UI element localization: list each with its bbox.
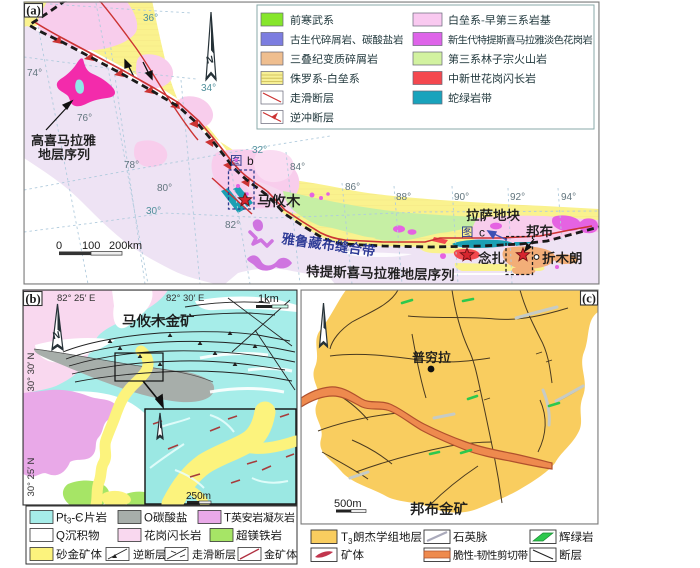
svg-text:82° 30′ E: 82° 30′ E xyxy=(166,293,204,304)
svg-text:32°: 32° xyxy=(252,145,267,156)
svg-text:c: c xyxy=(479,226,485,240)
svg-text:82° 25′ E: 82° 25′ E xyxy=(57,293,95,304)
svg-text:O: O xyxy=(144,513,153,525)
svg-text:(c): (c) xyxy=(582,292,596,306)
svg-text:T: T xyxy=(224,513,231,525)
svg-text:3: 3 xyxy=(348,537,353,546)
svg-text:78°: 78° xyxy=(124,160,139,171)
svg-text:34°: 34° xyxy=(201,83,216,94)
svg-text:200km: 200km xyxy=(109,240,142,252)
svg-text:30°: 30° xyxy=(146,206,161,217)
svg-text:T: T xyxy=(341,532,348,544)
svg-text:250m: 250m xyxy=(186,491,211,502)
svg-text:82°: 82° xyxy=(225,220,240,231)
svg-text:30° 25′ N: 30° 25′ N xyxy=(26,457,37,496)
svg-text:(a): (a) xyxy=(26,4,41,18)
svg-text:0: 0 xyxy=(56,240,62,252)
svg-text:80°: 80° xyxy=(157,183,172,194)
svg-text:b: b xyxy=(247,154,254,168)
svg-text:1km: 1km xyxy=(258,293,279,305)
svg-text:36°: 36° xyxy=(143,13,158,24)
svg-text:86°: 86° xyxy=(345,182,360,193)
svg-text:94°: 94° xyxy=(561,192,576,203)
svg-text:90°: 90° xyxy=(454,192,469,203)
svg-text:30° 30′ N: 30° 30′ N xyxy=(26,352,37,391)
svg-text:74°: 74° xyxy=(27,68,42,79)
svg-text:100: 100 xyxy=(82,240,100,252)
svg-text:76°: 76° xyxy=(77,113,92,124)
svg-text:84°: 84° xyxy=(290,162,305,173)
svg-text:Q: Q xyxy=(56,531,65,543)
svg-text:(b): (b) xyxy=(25,292,40,306)
svg-text:92°: 92° xyxy=(510,192,525,203)
svg-text:88°: 88° xyxy=(396,192,411,203)
svg-text:500m: 500m xyxy=(334,498,362,510)
